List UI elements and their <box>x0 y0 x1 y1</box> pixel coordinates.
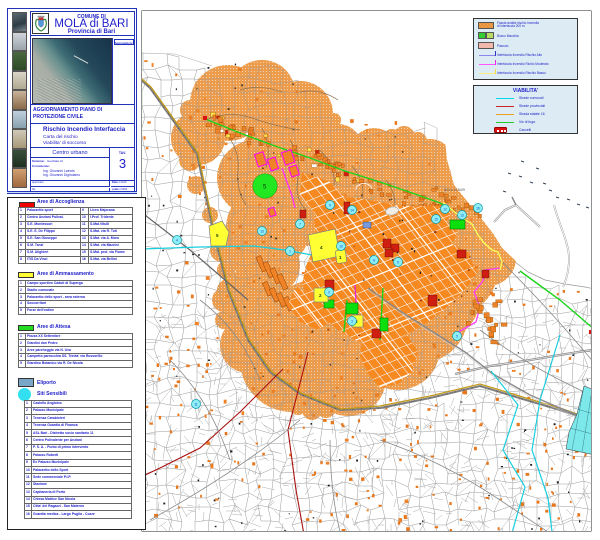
svg-text:11: 11 <box>194 403 198 407</box>
svg-text:7: 7 <box>299 223 301 227</box>
svg-text:15: 15 <box>434 218 438 222</box>
svg-text:3: 3 <box>351 320 353 324</box>
svg-text:5: 5 <box>216 233 219 238</box>
svg-text:13: 13 <box>460 214 464 218</box>
svg-text:13: 13 <box>260 230 264 234</box>
svg-text:1: 1 <box>289 250 291 254</box>
svg-text:2: 2 <box>328 291 330 295</box>
svg-text:4: 4 <box>176 239 178 243</box>
svg-text:5: 5 <box>456 335 458 339</box>
svg-text:14: 14 <box>350 209 354 213</box>
svg-text:2: 2 <box>319 293 322 298</box>
svg-text:8: 8 <box>373 259 375 263</box>
svg-text:4: 4 <box>320 245 323 250</box>
svg-text:9: 9 <box>329 204 331 208</box>
svg-text:12: 12 <box>443 208 447 212</box>
svg-text:MOLA DI BARI: MOLA DI BARI <box>444 188 465 192</box>
svg-text:9: 9 <box>397 261 399 265</box>
svg-text:1: 1 <box>339 255 342 260</box>
svg-text:10: 10 <box>339 245 343 249</box>
svg-text:16: 16 <box>476 207 480 211</box>
